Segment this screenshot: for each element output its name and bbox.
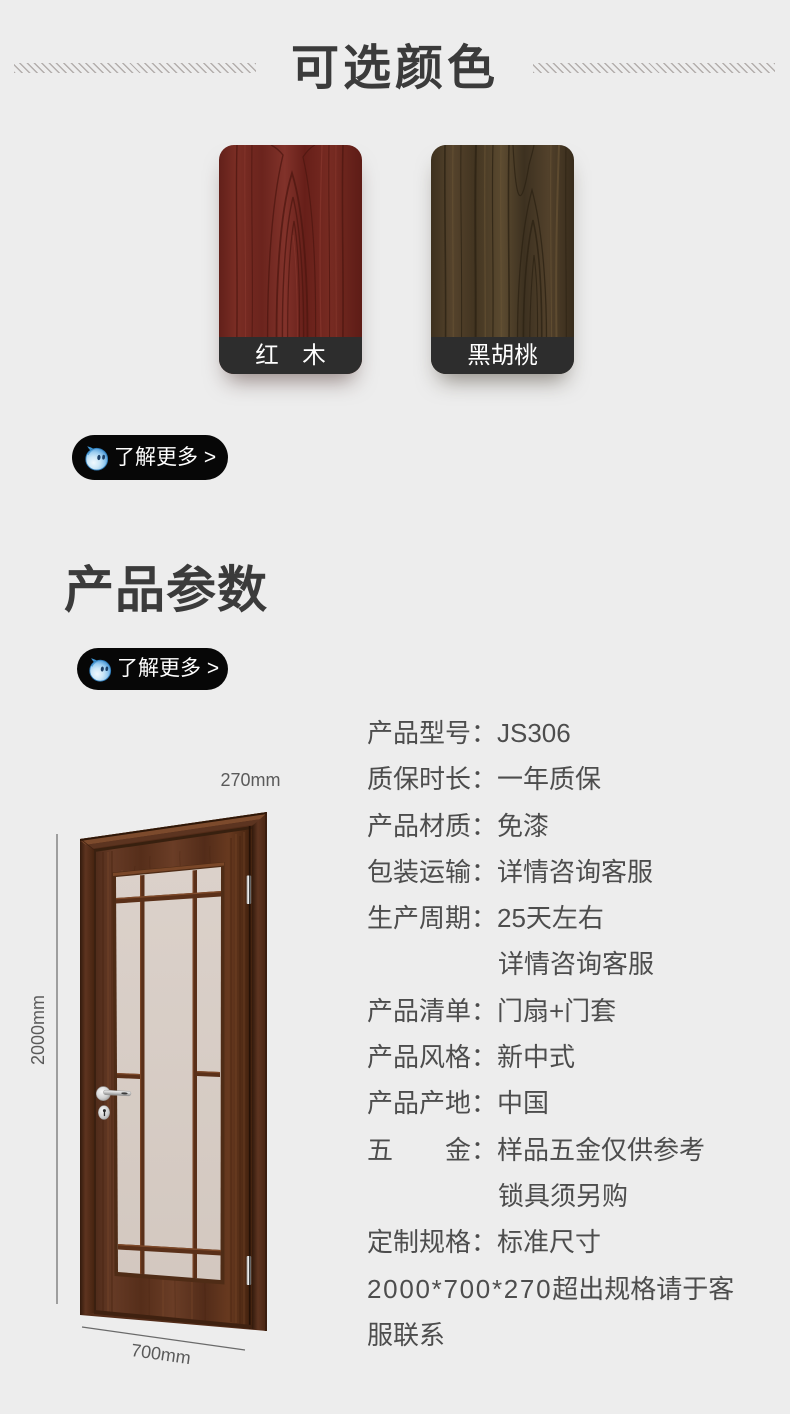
svg-text:2000mm: 2000mm: [28, 995, 48, 1065]
svg-text:700mm: 700mm: [130, 1340, 192, 1368]
svg-text:270mm: 270mm: [220, 770, 280, 790]
